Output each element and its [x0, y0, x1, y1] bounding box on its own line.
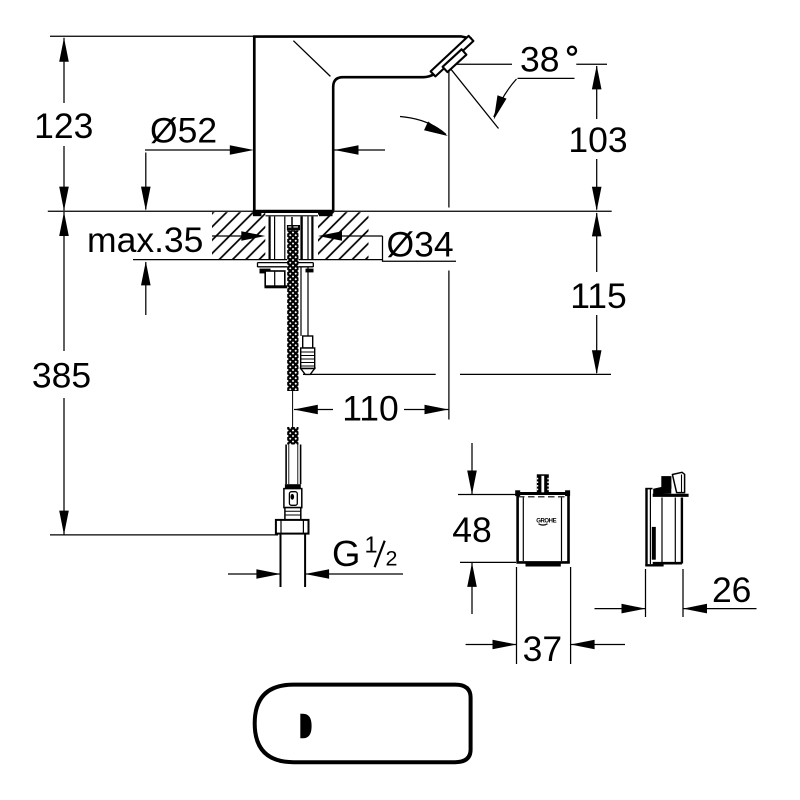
svg-text:26: 26: [712, 570, 752, 610]
svg-text:1: 1: [365, 532, 378, 558]
svg-text:48: 48: [452, 510, 492, 550]
svg-text:110: 110: [342, 389, 399, 429]
svg-text:38: 38: [520, 40, 560, 80]
svg-text:385: 385: [32, 356, 91, 396]
svg-text:2: 2: [386, 547, 398, 571]
svg-text:37: 37: [523, 629, 563, 669]
svg-text:Ø34: Ø34: [387, 225, 454, 265]
svg-text:max.35: max.35: [87, 220, 203, 260]
svg-text:115: 115: [570, 276, 627, 316]
svg-text:G: G: [332, 533, 360, 574]
svg-text:103: 103: [568, 120, 627, 160]
svg-text:123: 123: [34, 106, 93, 146]
svg-text:Ø52: Ø52: [150, 111, 217, 151]
